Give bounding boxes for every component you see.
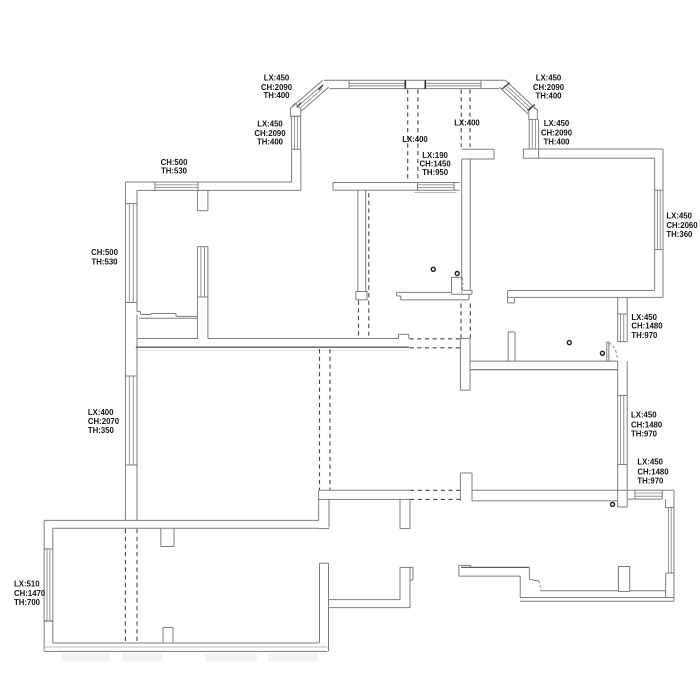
svg-text:TH:400: TH:400 <box>536 92 563 101</box>
svg-text:CH:1480: CH:1480 <box>637 467 669 476</box>
svg-text:LX:450: LX:450 <box>637 458 663 467</box>
svg-text:CH:1470: CH:1470 <box>14 589 46 598</box>
svg-text:CH:2090: CH:2090 <box>541 129 573 138</box>
svg-text:TH:400: TH:400 <box>544 137 571 146</box>
svg-text:TH:970: TH:970 <box>637 477 664 486</box>
svg-text:LX:400: LX:400 <box>402 135 428 144</box>
svg-text:LX:400: LX:400 <box>454 118 480 127</box>
svg-text:TH:400: TH:400 <box>257 138 284 147</box>
svg-text:LX:510: LX:510 <box>14 580 40 589</box>
svg-text:TH:700: TH:700 <box>14 598 41 607</box>
svg-text:CH:2070: CH:2070 <box>88 417 120 426</box>
svg-text:LX:450: LX:450 <box>536 73 562 82</box>
svg-text:TH:970: TH:970 <box>631 331 658 340</box>
svg-text:LX:450: LX:450 <box>631 313 657 322</box>
svg-text:TH:400: TH:400 <box>264 91 291 100</box>
svg-text:CH:500: CH:500 <box>91 248 119 257</box>
svg-text:CH:2090: CH:2090 <box>533 83 565 92</box>
svg-text:LX:450: LX:450 <box>666 212 692 221</box>
svg-text:TH:950: TH:950 <box>422 168 449 177</box>
svg-text:TH:530: TH:530 <box>92 258 119 267</box>
svg-text:TH:530: TH:530 <box>161 167 188 176</box>
svg-text:LX:450: LX:450 <box>257 119 283 128</box>
svg-text:LX:450: LX:450 <box>631 410 657 419</box>
svg-text:CH:2090: CH:2090 <box>254 129 286 138</box>
svg-text:TH:970: TH:970 <box>631 430 658 439</box>
svg-text:TH:360: TH:360 <box>666 230 693 239</box>
svg-text:CH:500: CH:500 <box>161 158 189 167</box>
svg-text:LX:400: LX:400 <box>88 408 114 417</box>
svg-text:LX:450: LX:450 <box>544 119 570 128</box>
svg-text:CH:2060: CH:2060 <box>666 221 698 230</box>
svg-text:CH:1480: CH:1480 <box>631 322 663 331</box>
svg-text:CH:1480: CH:1480 <box>631 420 663 429</box>
svg-text:TH:350: TH:350 <box>88 426 115 435</box>
svg-text:LX:450: LX:450 <box>264 73 290 82</box>
